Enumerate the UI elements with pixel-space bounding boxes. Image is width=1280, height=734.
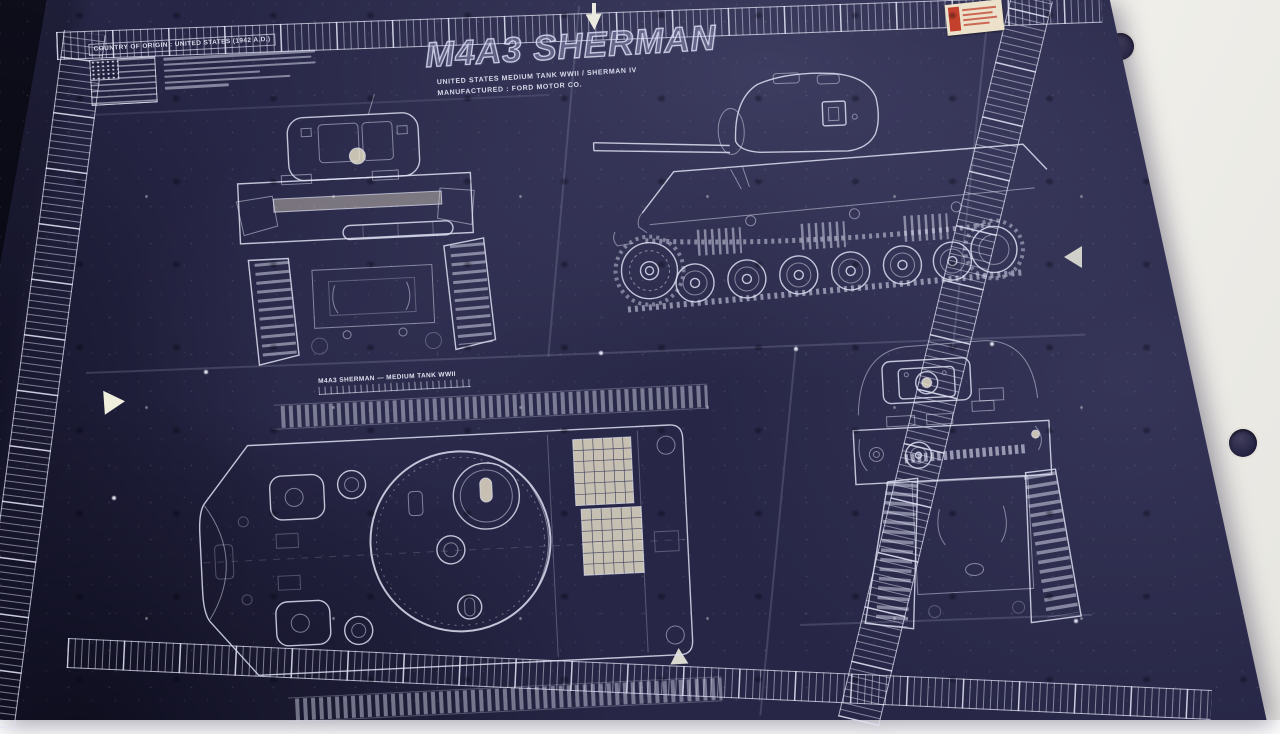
blueprint-photo: M4A3 SHERMAN UNITED STATES MEDIUM TANK W…: [0, 0, 1280, 720]
red-stamp-label: [945, 0, 1005, 36]
stamp-text-line: [963, 11, 993, 16]
hull: [852, 397, 1052, 484]
rear-elevation-drawing: [208, 87, 513, 373]
tracks: [858, 468, 1082, 631]
gun-barrel: [592, 108, 745, 160]
grid-node: [599, 351, 603, 355]
suspension: [613, 199, 1024, 310]
front-elevation-drawing: [834, 324, 1090, 641]
info-text-line: [165, 84, 229, 90]
turret: [285, 92, 420, 181]
blueprint-sheet-wrap: M4A3 SHERMAN UNITED STATES MEDIUM TANK W…: [0, 0, 1280, 720]
plan-view-drawing: [185, 368, 791, 734]
stamp-text-line: [962, 6, 996, 11]
grid-node: [204, 370, 208, 374]
registration-arrow-top-stem: [592, 3, 596, 15]
registration-arrow-right: [1064, 246, 1082, 268]
us-flag-canton: [90, 59, 119, 81]
info-box-paragraph: [163, 47, 317, 101]
stamp-text-line: [964, 21, 990, 25]
side-elevation-drawing: [587, 57, 1057, 346]
us-flag-icon: [89, 56, 157, 106]
lower-hull: [308, 264, 442, 354]
registration-arrow-left: [103, 389, 126, 414]
tracks: [248, 238, 496, 366]
grid-node: [112, 496, 116, 500]
lower-hull: [912, 477, 1035, 619]
driver-hatches: [269, 470, 373, 648]
hull: [235, 166, 476, 245]
blueprint-sheet: M4A3 SHERMAN UNITED STATES MEDIUM TANK W…: [0, 0, 1280, 720]
stamp-text-line: [963, 16, 997, 21]
engine-deck-grilles: [573, 437, 645, 576]
frame-ruler-left: [0, 30, 106, 729]
stamp-red-bar: [948, 7, 961, 32]
info-box: COUNTRY OF ORIGIN : UNITED STATES (1942 …: [88, 25, 329, 106]
turret: [855, 338, 1038, 415]
turret-ring: [366, 447, 555, 636]
turret: [733, 70, 880, 155]
grid-node: [794, 347, 798, 351]
